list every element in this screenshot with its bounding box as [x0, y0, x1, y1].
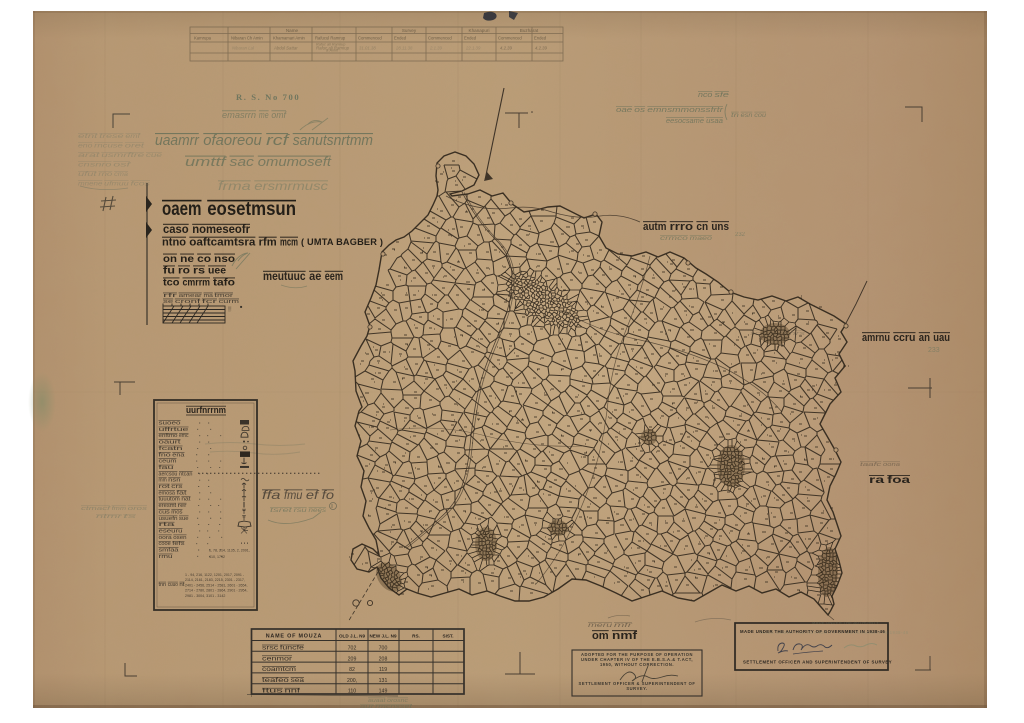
svg-text:rsu: rsu	[294, 508, 308, 514]
svg-text:MADE UNDER THE AUTHORITY OF GO: MADE UNDER THE AUTHORITY OF GOVERNMENT I…	[740, 629, 885, 634]
svg-text:on: on	[163, 253, 177, 265]
svg-text:frma: frma	[218, 179, 251, 193]
svg-text:fcatn: fcatn	[159, 446, 183, 452]
svg-text:Rafuc ali Ramrup: Rafuc ali Ramrup	[316, 43, 345, 47]
svg-text:Kamrupa: Kamrupa	[194, 36, 212, 41]
svg-text:suoeo: suoeo	[159, 421, 181, 427]
svg-text:omf: omf	[271, 110, 287, 121]
svg-text:( UMTA BAGBER ): ( UMTA BAGBER )	[301, 237, 383, 247]
svg-text:ntcan: ntcan	[179, 471, 193, 477]
svg-text:om: om	[592, 630, 609, 642]
svg-text:oora: oora	[159, 535, 172, 541]
svg-text:rot: rot	[159, 484, 171, 490]
svg-text:4.2.39: 4.2.39	[500, 46, 513, 51]
svg-text:fu: fu	[163, 266, 175, 277]
svg-text:oaftcamtsra: oaftcamtsra	[189, 237, 256, 249]
svg-text:an: an	[919, 332, 930, 344]
svg-text:149: 149	[379, 689, 388, 695]
svg-text:me: me	[259, 110, 269, 121]
svg-text:emnsmmonssfrtr: emnsmmonssfrtr	[647, 107, 724, 114]
svg-text:NEW J.L. N9: NEW J.L. N9	[369, 634, 397, 639]
svg-text:sac: sac	[230, 154, 255, 169]
svg-text:crmco: crmco	[660, 236, 689, 242]
svg-text:oae: oae	[616, 107, 632, 114]
svg-text:ntmr: ntmr	[96, 514, 123, 520]
svg-text:nomeseofr: nomeseofr	[192, 224, 250, 236]
svg-text:ceum: ceum	[159, 459, 177, 465]
svg-text:nat: nat	[181, 497, 191, 503]
svg-text:crs: crs	[171, 484, 183, 490]
svg-text:ra: ra	[869, 475, 885, 486]
svg-text:fefs: fefs	[172, 541, 185, 547]
svg-text:ntno: ntno	[162, 237, 186, 249]
svg-text:cenmor: cenmor	[262, 656, 292, 662]
svg-text:smfaa: smfaa	[159, 548, 179, 554]
svg-text:Ended: Ended	[534, 36, 547, 41]
svg-text:eesocsame: eesocsame	[666, 118, 704, 125]
svg-text:emasrrn: emasrrn	[222, 110, 256, 121]
svg-text:nnf: nnf	[285, 689, 301, 695]
svg-text:eresmt: eresmt	[159, 503, 177, 509]
svg-text:meru: meru	[588, 623, 613, 629]
svg-text:233: 233	[928, 347, 940, 354]
svg-text:SIST.: SIST.	[443, 634, 454, 639]
svg-text:foa: foa	[887, 475, 910, 486]
svg-text:usuefn: usuefn	[159, 516, 178, 522]
svg-text:rmcnsset: rmcnsset	[375, 704, 413, 710]
svg-text:4.2.39: 4.2.39	[535, 46, 548, 51]
svg-text:sea: sea	[291, 678, 305, 684]
svg-text:uurfnrrnm: uurfnrrnm	[186, 405, 226, 415]
svg-text:rta: rta	[159, 522, 175, 528]
svg-text:sanutsnrtmm: sanutsnrtmm	[293, 132, 373, 149]
svg-text:OLD J.L. N9: OLD J.L. N9	[339, 634, 365, 639]
svg-text:rs: rs	[193, 266, 206, 277]
svg-text:tafo: tafo	[213, 278, 235, 289]
svg-text:tco: tco	[163, 278, 180, 289]
svg-text:cn: cn	[696, 221, 708, 233]
svg-text:700: 700	[379, 646, 388, 652]
svg-text:aur: aur	[360, 704, 374, 710]
svg-text:ctmacf: ctmacf	[81, 506, 111, 512]
svg-text:fno: fno	[159, 452, 171, 458]
svg-text:1, 78, 214, 1135, 2, 2091,: 1, 78, 214, 1135, 2, 2091,	[209, 549, 250, 553]
svg-text:tnn: tnn	[159, 582, 167, 588]
svg-text:rer: rer	[178, 503, 187, 509]
svg-text:mfr: mfr	[614, 623, 634, 629]
svg-text:119: 119	[379, 667, 387, 673]
svg-text:ae: ae	[309, 271, 321, 283]
svg-text:2114, 2161, 2183, 2215, 2301 -: 2114, 2161, 2183, 2215, 2301 - 2317,	[185, 578, 245, 582]
svg-text:rfm: rfm	[259, 237, 277, 249]
svg-text:cma: cma	[114, 171, 129, 178]
svg-text:oaem: oaem	[162, 199, 202, 220]
svg-text:Abdul Sattar: Abdul Sattar	[273, 46, 298, 51]
svg-text:208: 208	[379, 656, 388, 662]
svg-text:mm: mm	[159, 478, 167, 484]
svg-text:eosetmsun: eosetmsun	[207, 199, 296, 220]
svg-text:sfe: sfe	[715, 92, 730, 99]
svg-text:ena: ena	[172, 452, 184, 458]
svg-text:SETTLEMENT OFFICER AND SUPERIN: SETTLEMENT OFFICER AND SUPERINTENDENT OF…	[743, 660, 892, 665]
svg-text:209: 209	[348, 656, 357, 662]
svg-text:etnt: etnt	[78, 133, 98, 140]
svg-text:ffa: ffa	[262, 488, 281, 502]
svg-text:oona: oona	[883, 462, 900, 468]
svg-text:rmu: rmu	[159, 554, 173, 560]
svg-text:702: 702	[348, 646, 357, 652]
svg-text:fcr: fcr	[202, 299, 218, 305]
svg-text:SURVEY.: SURVEY.	[626, 686, 647, 691]
svg-text:131: 131	[379, 678, 388, 684]
svg-text:Commenced: Commenced	[498, 36, 522, 41]
svg-text:ne: ne	[180, 253, 194, 265]
svg-text:Commenced: Commenced	[428, 36, 452, 41]
svg-text:srsc: srsc	[262, 646, 278, 652]
svg-text:ersmrmusc: ersmrmusc	[254, 179, 328, 193]
svg-text:MADE UNDER THE AUTHORITY: MADE UNDER THE AUTHORITY	[812, 620, 879, 625]
svg-text:esn: esn	[741, 112, 753, 119]
svg-text:ts: ts	[123, 514, 137, 520]
svg-text:nees: nees	[309, 508, 327, 514]
svg-text:tsret: tsret	[270, 508, 292, 514]
svg-text:taafc: taafc	[860, 462, 882, 468]
svg-text:funcfe: funcfe	[280, 646, 305, 652]
svg-text:Survey: Survey	[402, 28, 417, 33]
svg-text:RS.: RS.	[412, 634, 420, 639]
svg-text:200,: 200,	[347, 678, 357, 684]
svg-text:osf: osf	[113, 162, 132, 169]
svg-text:ccru: ccru	[893, 332, 915, 344]
svg-text:emf: emf	[125, 133, 141, 140]
svg-text:Ended: Ended	[464, 36, 477, 41]
svg-text:uau: uau	[933, 332, 950, 344]
svg-text:coamtcm: coamtcm	[262, 667, 296, 673]
svg-text:22.1.39: 22.1.39	[465, 46, 481, 51]
svg-text:2.1.39: 2.1.39	[429, 46, 443, 51]
svg-text:R. S. No 700: R. S. No 700	[236, 92, 300, 102]
svg-text:oros: oros	[128, 506, 148, 512]
svg-text:rrro: rrro	[670, 221, 694, 233]
svg-text:ufut: ufut	[78, 171, 97, 178]
svg-text:curm: curm	[219, 299, 240, 305]
svg-text:eem: eem	[325, 271, 343, 283]
svg-text:fmm: fmm	[112, 506, 127, 512]
svg-text:cou: cou	[754, 112, 766, 119]
svg-text:Ended: Ended	[394, 36, 407, 41]
svg-text:rncuse: rncuse	[94, 143, 124, 150]
svg-text:uaamrr: uaamrr	[155, 132, 200, 149]
svg-text:co: co	[197, 253, 211, 265]
svg-text:uns: uns	[711, 221, 729, 233]
svg-text:emosa: emosa	[159, 490, 176, 496]
svg-text:osen: osen	[173, 535, 186, 541]
svg-text:usaa: usaa	[706, 118, 723, 125]
svg-text:fat: fat	[177, 490, 188, 496]
svg-text:cooe: cooe	[159, 541, 171, 547]
svg-text:& Amin: & Amin	[326, 49, 338, 53]
svg-text:aercsou: aercsou	[159, 471, 178, 477]
svg-text:arat: arat	[78, 152, 100, 159]
svg-text:eno: eno	[78, 143, 93, 150]
svg-text:82: 82	[349, 667, 355, 673]
svg-text:cnsnro: cnsnro	[78, 162, 112, 169]
svg-text:tuuutom: tuuutom	[159, 497, 180, 503]
svg-text:28.11.38: 28.11.38	[395, 46, 413, 51]
svg-text:fau: fau	[159, 465, 174, 471]
svg-text:NAME OF MOUZA: NAME OF MOUZA	[266, 634, 323, 640]
svg-text:2981 - 3004, 3101 - 3142: 2981 - 3004, 3101 - 3142	[185, 594, 225, 598]
svg-text:1 - 94, 216, 1122, 1201, 2017,: 1 - 94, 216, 1122, 1201, 2017, 2091 -	[185, 573, 245, 577]
svg-text:1950, WITHOUT CORRECTION.: 1950, WITHOUT CORRECTION.	[600, 662, 674, 667]
svg-text:Nibaran Lal: Nibaran Lal	[232, 46, 255, 51]
svg-text:usmrftre: usmrftre	[101, 152, 145, 159]
svg-text:trese: trese	[99, 133, 124, 140]
svg-text:enftmo: enftmo	[159, 433, 178, 439]
svg-text:2714 - 2780, 2801 - 2864, 2901: 2714 - 2780, 2801 - 2864, 2901 - 2954,	[185, 589, 248, 593]
svg-text:410, 1792: 410, 1792	[209, 555, 225, 559]
svg-text:umttf: umttf	[185, 154, 228, 169]
svg-text:ftus: ftus	[262, 689, 283, 695]
svg-text:Khamamari Amin: Khamamari Amin	[273, 36, 306, 41]
svg-text:ofaoreou: ofaoreou	[203, 132, 262, 149]
svg-text:ef: ef	[306, 488, 320, 502]
svg-text:uffrtue: uffrtue	[159, 427, 189, 433]
svg-text:os: os	[634, 107, 646, 114]
svg-text:Buzharat: Buzharat	[520, 28, 539, 33]
svg-text:fo: fo	[322, 488, 335, 502]
svg-text:tn: tn	[731, 112, 739, 119]
svg-text:fmu: fmu	[284, 488, 303, 502]
svg-text:nco: nco	[698, 92, 713, 99]
svg-text:emc: emc	[179, 433, 189, 439]
svg-text:ro: ro	[178, 266, 190, 277]
svg-text:autm: autm	[643, 221, 667, 233]
svg-text:Commenced: Commenced	[358, 36, 382, 41]
svg-text:31.01.38: 31.01.38	[359, 46, 376, 51]
svg-text:232: 232	[735, 232, 746, 238]
svg-text:cmrrm: cmrrm	[183, 278, 211, 289]
svg-text:mos: mos	[171, 509, 183, 515]
svg-text:eseuru: eseuru	[159, 529, 183, 535]
svg-text:cue: cue	[146, 152, 163, 159]
svg-text:110: 110	[348, 689, 356, 695]
svg-text:teafeo: teafeo	[262, 678, 290, 684]
svg-text:2401 - 2456, 2514 - 2581, 2601: 2401 - 2456, 2514 - 2581, 2601 - 2654,	[185, 583, 248, 587]
svg-text:meutuuc: meutuuc	[263, 271, 306, 283]
svg-text:amrnu: amrnu	[862, 332, 890, 344]
svg-text:mcm: mcm	[280, 237, 298, 249]
svg-text:cronf: cronf	[175, 299, 201, 305]
svg-text:Name: Name	[286, 28, 299, 33]
svg-text:omumoseft: omumoseft	[258, 154, 333, 169]
svg-text:ufmuu: ufmuu	[104, 181, 129, 188]
svg-text:sue: sue	[179, 516, 189, 522]
svg-text:nmf: nmf	[612, 630, 637, 642]
svg-text:uee: uee	[208, 266, 226, 277]
svg-text:rcf: rcf	[266, 132, 290, 149]
svg-text:Khanapuri: Khanapuri	[469, 28, 490, 33]
svg-text:nsn: nsn	[168, 478, 180, 484]
svg-text:Rafucul Ramrup: Rafucul Ramrup	[315, 36, 346, 41]
svg-text:Nibaran Ch Amin: Nibaran Ch Amin	[231, 36, 263, 41]
svg-text:cuuo: cuuo	[168, 582, 178, 588]
svg-text:oaurt: oaurt	[159, 440, 182, 446]
svg-text:caso: caso	[163, 224, 189, 236]
svg-text:cus: cus	[159, 509, 171, 515]
svg-text:maeo: maeo	[690, 236, 713, 242]
svg-text:oret: oret	[125, 143, 145, 150]
svg-text:rno: rno	[98, 171, 113, 178]
svg-text:nso: nso	[214, 253, 235, 265]
